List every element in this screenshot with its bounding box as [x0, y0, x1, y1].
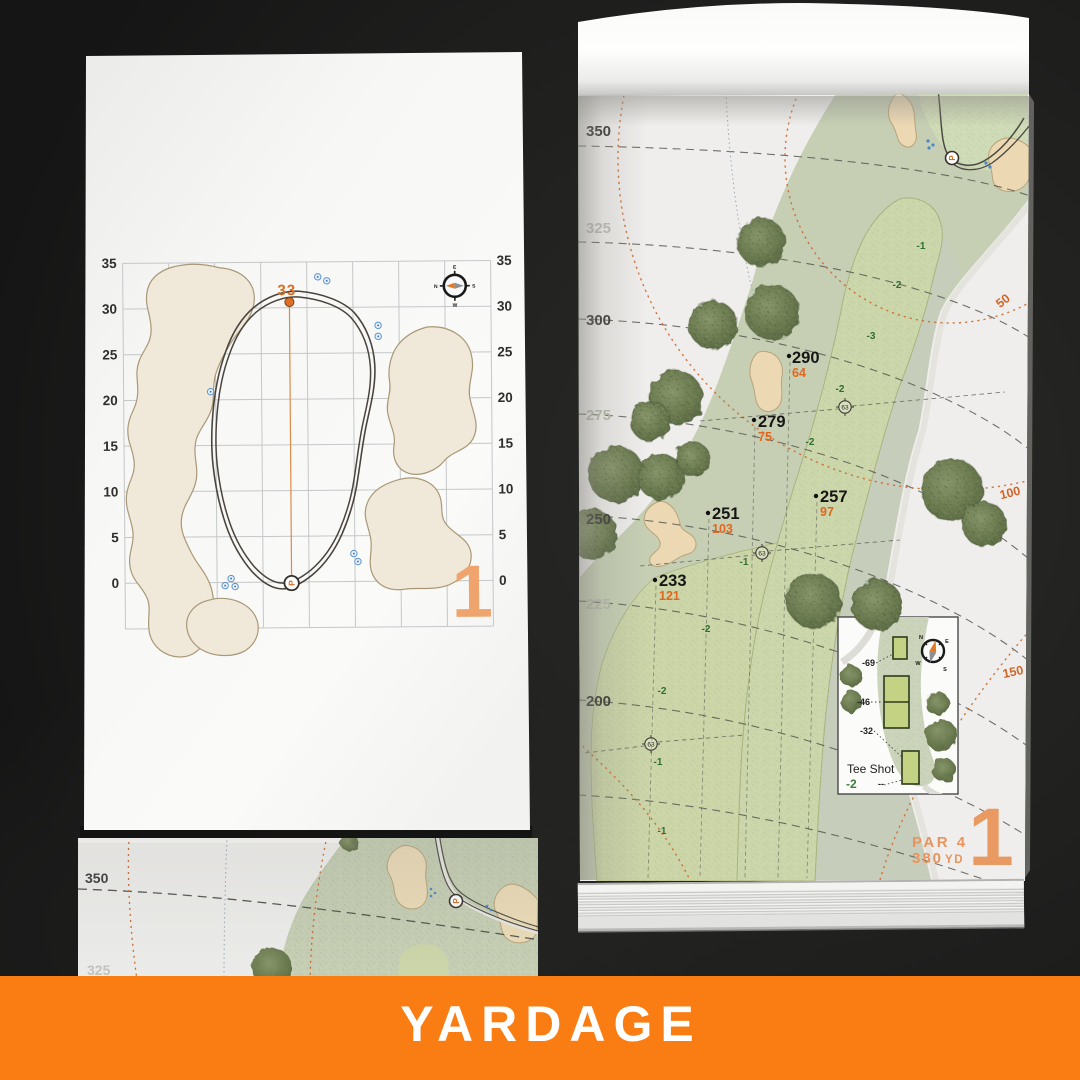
svg-text:20: 20: [498, 390, 513, 405]
svg-text:-32: -32: [860, 726, 873, 736]
svg-text:20: 20: [103, 393, 118, 408]
svg-text:-1: -1: [740, 557, 749, 568]
svg-text:1: 1: [968, 792, 1014, 883]
svg-text:30: 30: [102, 302, 117, 317]
svg-text:W: W: [915, 661, 921, 667]
svg-text:S: S: [943, 667, 947, 673]
svg-text:-46: -46: [857, 697, 870, 707]
svg-text:N: N: [919, 635, 923, 641]
svg-text:-1: -1: [917, 241, 926, 252]
svg-text:Tee Shot: Tee Shot: [847, 762, 895, 776]
svg-text:-2: -2: [658, 686, 667, 697]
svg-text:64: 64: [792, 366, 806, 380]
svg-text:-2: -2: [836, 384, 845, 395]
svg-text:25: 25: [102, 347, 118, 362]
svg-text:-2: -2: [893, 280, 902, 291]
svg-text:-3: -3: [867, 331, 876, 342]
svg-text:0: 0: [499, 573, 507, 588]
svg-text:25: 25: [497, 344, 513, 359]
svg-text:279: 279: [758, 413, 786, 431]
svg-text:63: 63: [758, 551, 766, 558]
svg-text:97: 97: [820, 505, 834, 519]
svg-text:E: E: [945, 639, 949, 645]
svg-text:--: --: [878, 779, 884, 789]
svg-text:YARDAGE: YARDAGE: [400, 996, 701, 1052]
svg-text:35: 35: [102, 256, 118, 271]
svg-text:63: 63: [841, 405, 849, 412]
svg-text:-2: -2: [702, 624, 711, 635]
svg-text:0: 0: [112, 576, 120, 591]
svg-text:-1: -1: [654, 757, 663, 768]
svg-text:PAR 4: PAR 4: [912, 834, 968, 851]
svg-text:257: 257: [820, 488, 848, 506]
svg-text:121: 121: [659, 589, 680, 603]
svg-text:5: 5: [499, 527, 507, 542]
svg-text:N: N: [434, 284, 438, 290]
svg-text:W: W: [453, 303, 458, 309]
svg-text:30: 30: [497, 299, 512, 314]
svg-text:63: 63: [647, 742, 655, 749]
svg-text:P: P: [948, 155, 957, 161]
svg-text:15: 15: [498, 436, 514, 451]
svg-text:15: 15: [103, 439, 119, 454]
svg-text:35: 35: [497, 253, 513, 268]
svg-text:10: 10: [498, 481, 513, 496]
svg-text:251: 251: [712, 505, 740, 523]
svg-text:103: 103: [712, 522, 733, 536]
svg-text:-1: -1: [658, 826, 667, 837]
svg-text:-69: -69: [862, 658, 875, 668]
svg-text:10: 10: [103, 484, 118, 499]
svg-text:1: 1: [451, 549, 493, 632]
svg-text:290: 290: [792, 349, 820, 367]
svg-text:5: 5: [111, 530, 119, 545]
svg-text:-2: -2: [806, 437, 815, 448]
svg-text:33: 33: [277, 282, 296, 299]
svg-text:233: 233: [659, 572, 687, 590]
svg-text:-2: -2: [846, 777, 857, 791]
svg-text:P: P: [287, 580, 297, 586]
svg-text:75: 75: [758, 430, 772, 444]
